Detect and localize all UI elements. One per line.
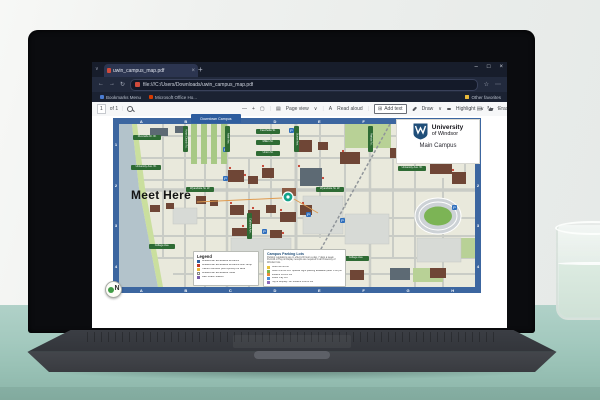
add-text-button[interactable]: ⊞ Add text: [374, 104, 407, 114]
laptop-base: [22, 330, 562, 372]
grid-number: 4: [477, 264, 479, 269]
read-aloud-icon: A: [329, 106, 332, 112]
street-label: University Ave. W.: [131, 165, 161, 170]
legend-row: Visitor Pay Lot: [267, 277, 342, 280]
svg-text:P: P: [224, 176, 227, 181]
url-text: file:///C:/Users/Downloads/uwin_campus_m…: [143, 82, 253, 88]
legend-label: Visitor Pay Lot: [272, 277, 288, 280]
browser-tab[interactable]: uwin_campus_map.pdf ×: [104, 64, 198, 77]
org-name-line2: of Windsor: [432, 132, 463, 138]
office-icon: [149, 95, 153, 99]
street-label: Wyandotte St. W.: [316, 187, 344, 192]
legend-label: Wheelchair accessible entrance: [202, 260, 240, 263]
legend-row: Green Permit Lot. Special night parking …: [267, 270, 342, 273]
trackpad: [233, 335, 352, 348]
grid-number: 1: [115, 142, 117, 147]
parking-info-box: Campus Parking Lots Parking regulations …: [263, 249, 346, 287]
university-logo-box: University of Windsor Main Campus: [396, 119, 480, 164]
water-glass: [556, 225, 600, 320]
legend-row: Transit Windsor pick up/drop off area: [197, 268, 255, 271]
grid-letter: E: [318, 119, 321, 124]
meet-here-annotation[interactable]: Meet Here: [131, 188, 191, 202]
add-text-icon: ⊞: [378, 106, 382, 112]
chevron-down-icon: ∨: [314, 106, 318, 112]
legend-label: Wheelchair accessible route: [202, 272, 236, 275]
grid-letter: A: [140, 288, 143, 293]
campus-map: PPPPPPPP ABCDEFGH ABCDEFGH 1234 1234 Riv…: [113, 118, 481, 293]
street-label: Millen St.: [256, 140, 280, 145]
street-label: California Ave.: [247, 213, 252, 239]
browser-window: ∨ uwin_campus_map.pdf × + – □ × ← →: [92, 62, 507, 328]
parking-note: Parking regulations are in effect 24 hou…: [267, 257, 342, 265]
grid-letter: B: [184, 288, 187, 293]
legend-row: Student Permit Lot: [267, 273, 342, 276]
browser-menu-icon[interactable]: ⋯: [495, 81, 501, 88]
legend-label: Transit Windsor pick up/drop off area: [202, 268, 246, 271]
street-label: Union St.: [256, 151, 280, 156]
pdf-page: PPPPPPPP ABCDEFGH ABCDEFGH 1234 1234 Riv…: [92, 116, 507, 328]
page-count-label: of 1: [110, 106, 118, 112]
bookmark-item[interactable]: Bookmarks Menu: [100, 95, 141, 100]
pdf-toolbar: 1 of 1 | — + ▢ | ▤ Page view ∨ | A Read …: [92, 102, 507, 117]
svg-text:P: P: [263, 229, 266, 234]
back-icon[interactable]: ←: [98, 81, 104, 88]
rotate-icon[interactable]: ↻: [487, 106, 492, 112]
legend-label: Gold Permit Lot: [272, 266, 289, 269]
favorite-star-icon[interactable]: ☆: [484, 81, 489, 88]
legend-color-chip: [267, 277, 270, 280]
downtown-campus-tag: Downtown Campus: [191, 114, 241, 123]
svg-text:P: P: [341, 218, 344, 223]
draw-button[interactable]: Draw: [422, 106, 434, 112]
compass-north-icon: N: [105, 281, 122, 298]
street-label: University Ave. W.: [398, 166, 426, 171]
page-number-field[interactable]: 1: [97, 104, 106, 114]
grid-letter: H: [451, 288, 454, 293]
zoom-in-button[interactable]: +: [252, 106, 255, 112]
svg-text:P: P: [307, 212, 310, 217]
url-field[interactable]: file:///C:/Users/Downloads/uwin_campus_m…: [130, 79, 478, 91]
forward-icon[interactable]: →: [109, 81, 115, 88]
minimize-button[interactable]: –: [475, 64, 478, 70]
tab-bar: ∨ uwin_campus_map.pdf × + – □ ×: [92, 62, 507, 77]
legend-color-chip: [197, 260, 200, 263]
grid-letter: F: [362, 119, 364, 124]
legend-color-chip: [267, 266, 270, 269]
legend-label: Green Permit Lot. Special night parking …: [272, 270, 343, 273]
grid-letter: C: [229, 288, 232, 293]
tab-title: uwin_campus_map.pdf: [113, 68, 189, 74]
legend-color-chip: [267, 281, 270, 284]
street-label: Askin Ave.: [225, 126, 230, 152]
legend-color-chip: [197, 264, 200, 267]
svg-text:P: P: [453, 205, 456, 210]
laptop-screen: ∨ uwin_campus_map.pdf × + – □ × ← →: [28, 30, 535, 333]
draw-icon: [412, 107, 417, 112]
grid-letter: E: [318, 288, 321, 293]
legend-row: Wheelchair accessible entrance with ramp: [197, 264, 255, 267]
bookmark-label: Microsoft Office Ho...: [155, 95, 197, 100]
print-icon[interactable]: ▤: [477, 106, 482, 112]
glass-water: [559, 263, 600, 317]
street-label: College Ave.: [149, 244, 175, 249]
uwindsor-shield-icon: [413, 123, 428, 140]
grid-letter: D: [273, 288, 276, 293]
grid-letter: F: [362, 288, 364, 293]
legend-color-chip: [267, 270, 270, 273]
toolbar-more-icon[interactable]: ⋯: [497, 106, 503, 112]
stadium: [415, 198, 461, 234]
laptop-lid-notch: [254, 351, 330, 359]
meet-here-marker[interactable]: [283, 192, 293, 202]
legend-label: Pay & Display / All Student Permit Lot: [272, 281, 314, 284]
legend-label: Bike Share Station: [202, 276, 224, 279]
legend-row: Wheelchair accessible route: [197, 272, 255, 275]
page-view-icon: ▤: [276, 106, 281, 112]
refresh-icon[interactable]: ↻: [120, 81, 125, 88]
address-bar: ← → ↻ file:///C:/Users/Downloads/uwin_ca…: [92, 77, 507, 92]
grid-letter: A: [140, 119, 143, 124]
pdf-favicon: [107, 68, 111, 73]
legend-row: Wheelchair accessible entrance: [197, 260, 255, 263]
compass-letter: N: [114, 285, 119, 292]
photo-scene: ∨ uwin_campus_map.pdf × + – □ × ← →: [0, 0, 600, 400]
street-label: Huron Church Rd.: [183, 126, 188, 152]
legend-color-chip: [197, 276, 200, 279]
street-label: Fanchette St.: [256, 129, 280, 134]
legend-box: Legend Wheelchair accessible entranceWhe…: [193, 251, 259, 286]
bookmark-item[interactable]: Microsoft Office Ho...: [149, 95, 197, 100]
legend-row: Gold Permit Lot: [267, 266, 342, 269]
street-label: Patricia Rd.: [368, 126, 373, 152]
legend-title: Legend: [197, 254, 255, 259]
legend-label: Student Permit Lot: [272, 274, 293, 277]
other-favorites-button[interactable]: Other favorites: [465, 95, 501, 100]
legend-color-chip: [197, 268, 200, 271]
street-label: Sunset Ave.: [294, 126, 299, 152]
search-icon[interactable]: [127, 106, 133, 112]
grid-number: 3: [115, 223, 117, 228]
grid-letters-bottom: ABCDEFGH: [119, 287, 475, 293]
close-button[interactable]: ×: [499, 64, 503, 70]
read-aloud-button[interactable]: Read aloud: [337, 106, 363, 112]
highlight-icon: [447, 108, 451, 111]
bookmark-label: Bookmarks Menu: [106, 95, 141, 100]
grid-number: 4: [115, 264, 117, 269]
grid-letter: B: [184, 119, 187, 124]
compass-dot: [108, 287, 114, 293]
fit-to-page-icon[interactable]: ▢: [260, 106, 265, 112]
add-text-label: Add text: [384, 106, 402, 112]
legend-color-chip: [267, 273, 270, 276]
other-favorites-label: Other favorites: [471, 95, 501, 100]
tab-close-icon[interactable]: ×: [191, 68, 195, 74]
folder-icon: [465, 95, 469, 99]
grid-number: 3: [477, 223, 479, 228]
bookmark-icon: [100, 95, 104, 99]
campus-title: Main Campus: [419, 143, 456, 149]
svg-text:P: P: [290, 128, 293, 133]
bookmarks-bar: Bookmarks Menu Microsoft Office Ho... Ot…: [92, 92, 507, 102]
maximize-button[interactable]: □: [487, 64, 491, 70]
street-label: Riverside Dr. W.: [133, 135, 161, 140]
legend-color-chip: [197, 272, 200, 275]
legend-label: Wheelchair accessible entrance with ramp: [202, 264, 252, 267]
pdf-file-icon: [135, 82, 140, 87]
save-icon[interactable]: ↓: [469, 106, 472, 112]
street-label: College Ave.: [343, 256, 369, 261]
grid-number: 2: [115, 183, 117, 188]
legend-row: Pay & Display / All Student Permit Lot: [267, 281, 342, 284]
tab-list-icon[interactable]: ∨: [95, 66, 99, 72]
grid-letter: D: [273, 119, 276, 124]
zoom-out-button[interactable]: —: [242, 106, 247, 112]
window-controls: – □ ×: [475, 64, 503, 70]
new-tab-button[interactable]: +: [198, 65, 203, 75]
grid-letter: G: [406, 288, 409, 293]
page-view-button[interactable]: Page view: [286, 106, 309, 112]
grid-numbers-left: 1234: [113, 124, 119, 287]
grid-number: 2: [477, 183, 479, 188]
legend-row: Bike Share Station: [197, 276, 255, 279]
chevron-down-icon: ∨: [438, 106, 442, 112]
